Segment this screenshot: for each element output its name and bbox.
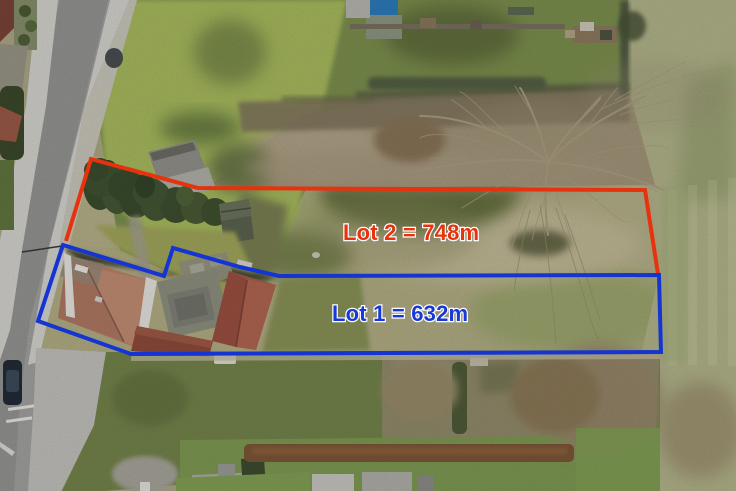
svg-text:Lot 1 = 632m: Lot 1 = 632m — [332, 301, 468, 326]
svg-text:Lot 2 = 748m: Lot 2 = 748m — [343, 220, 479, 245]
